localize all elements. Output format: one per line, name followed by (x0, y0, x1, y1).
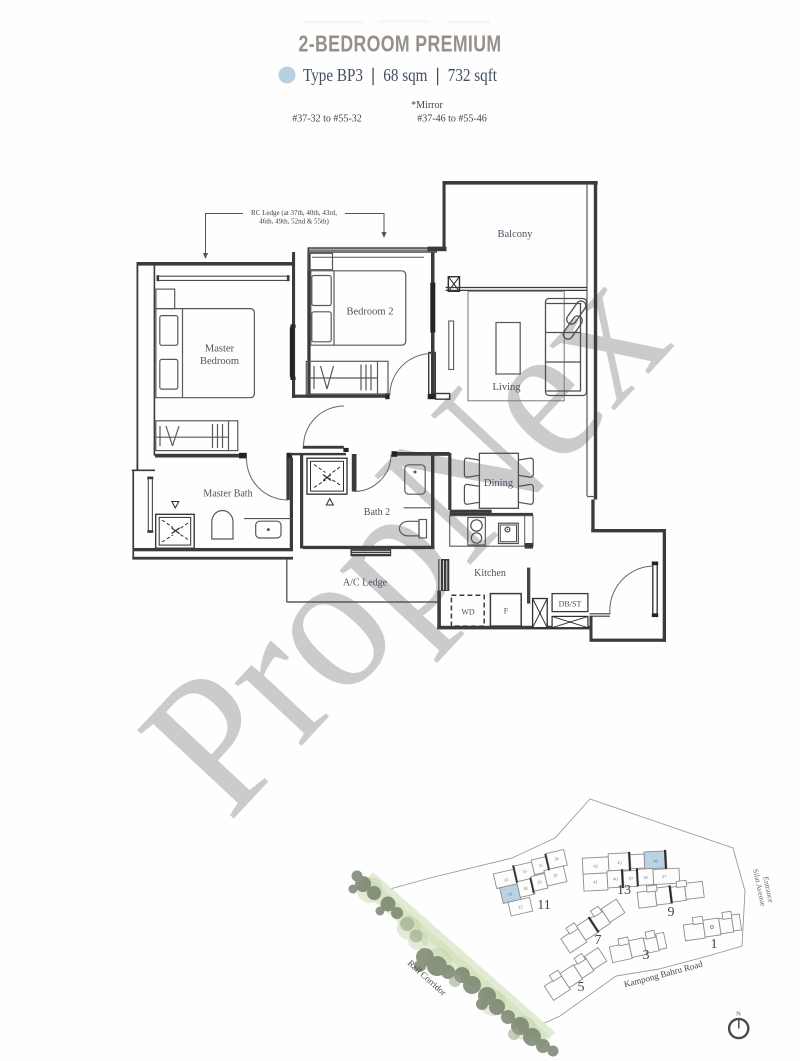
svg-text:1: 1 (711, 937, 718, 952)
svg-text:5: 5 (578, 980, 585, 995)
svg-text:Kitchen: Kitchen (474, 568, 506, 579)
svg-text:Bath 2: Bath 2 (364, 507, 390, 518)
svg-text:11: 11 (537, 898, 550, 913)
svg-text:Bedroom: Bedroom (200, 356, 239, 367)
svg-text:Bedroom 2: Bedroom 2 (347, 307, 394, 318)
svg-text:41: 41 (593, 879, 598, 884)
svg-text:46th, 49th, 52nd & 55th): 46th, 49th, 52nd & 55th) (259, 218, 329, 226)
svg-text:Balcony: Balcony (498, 229, 534, 240)
svg-text:#37-32 to #55-32: #37-32 to #55-32 (292, 114, 361, 125)
svg-text:Living: Living (493, 382, 522, 393)
svg-text:7: 7 (595, 933, 602, 948)
svg-text:2-BEDROOM PREMIUM: 2-BEDROOM PREMIUM (299, 31, 502, 57)
svg-text:3: 3 (643, 948, 650, 963)
svg-text:Dining: Dining (484, 478, 514, 489)
svg-text:Master: Master (205, 344, 235, 355)
svg-text:*Mirror: *Mirror (411, 100, 443, 111)
svg-text:DB/ST: DB/ST (559, 600, 582, 609)
svg-text:F: F (504, 607, 509, 616)
svg-text:42: 42 (593, 863, 598, 868)
svg-text:N: N (736, 1011, 741, 1018)
svg-text:#37-46 to #55-46: #37-46 to #55-46 (417, 114, 486, 125)
svg-text:Master Bath: Master Bath (203, 489, 252, 500)
svg-text:9: 9 (668, 905, 675, 920)
svg-text:RC Ledge (at 37th, 40th, 43rd,: RC Ledge (at 37th, 40th, 43rd, (251, 209, 337, 217)
svg-text:13: 13 (617, 883, 631, 898)
svg-text:WD: WD (461, 608, 475, 617)
svg-text:A/C Ledge: A/C Ledge (343, 578, 388, 589)
svg-text:Type BP3 ❘ 68 sqm ❘ 732 sqft: Type BP3 ❘ 68 sqm ❘ 732 sqft (303, 65, 497, 86)
